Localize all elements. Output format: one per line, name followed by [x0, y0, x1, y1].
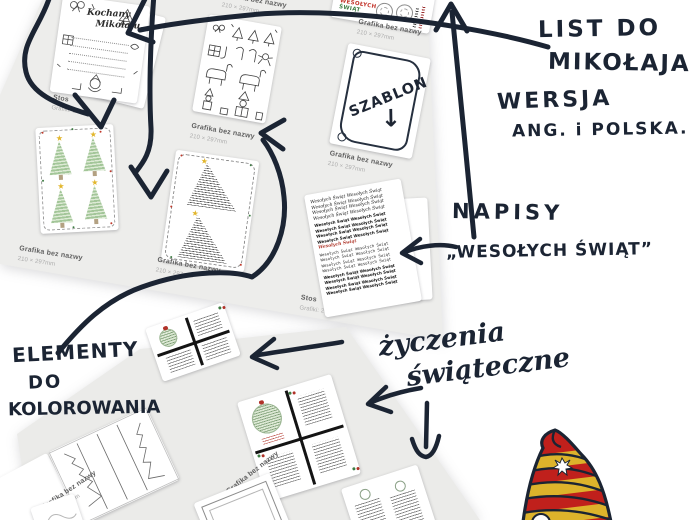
star-icon: ★ [57, 183, 65, 191]
wish-column [351, 485, 392, 520]
wreath-graphic [248, 400, 285, 437]
down-arrow-icon: ↓ [381, 104, 402, 132]
ornament-doodle-icon [395, 3, 415, 23]
tiny-text-block [355, 498, 392, 520]
note-elementy-line3: KOLOROWANIA [8, 397, 161, 421]
note-napisy-line1: NAPISY [452, 199, 564, 225]
green-trees-card[interactable]: ★ ★ ★ ★ [35, 124, 118, 234]
wish-column [386, 477, 427, 520]
tree-trunk [59, 175, 63, 180]
collage-stage: Kochany Mikołaju, Stos Grafiki: 2 Grafik… [0, 0, 700, 520]
label-letter-stack[interactable]: Stos Grafiki: 2 [51, 94, 79, 116]
ornament-doodle-icon [375, 2, 395, 22]
note-list-do-line3: WERSJA [497, 86, 613, 115]
merry-text-block: WESOŁYCH ŚWIĄT [339, 0, 377, 16]
star-icon: ★ [91, 179, 99, 187]
sprig-doodle [218, 306, 222, 310]
tiny-text-block [390, 489, 427, 520]
gnome-hat-illustration [505, 420, 635, 520]
star-icon: ★ [191, 209, 199, 218]
star-icon: ★ [56, 135, 64, 143]
wreath-mini-icon [358, 488, 372, 502]
tree-trunk [94, 219, 98, 224]
star-icon: ★ [90, 131, 98, 139]
note-list-do-line1: LIST DO [538, 15, 662, 43]
tree-trunk [60, 223, 64, 228]
letter-to-santa-card[interactable]: Kochany Mikołaju, [50, 0, 151, 104]
sprig-doodle [257, 454, 261, 458]
tiny-text-block [202, 337, 232, 361]
tiny-text-block [297, 389, 333, 426]
sprig-doodle [288, 391, 292, 395]
tree-trunk [93, 171, 97, 176]
label-wishes-stack[interactable]: Stos Grafiki: 2 [299, 294, 326, 315]
note-elementy-line2: DO [28, 371, 63, 393]
note-napisy-line2: „WESOŁYCH ŚWIĄT” [446, 239, 653, 263]
wreath-graphic [157, 326, 180, 349]
sprig-doodle [352, 467, 356, 471]
note-list-do-line4: ANG. i POLSKA. [512, 118, 689, 141]
wreath-mini-icon [393, 479, 407, 493]
star-icon: ★ [200, 157, 208, 166]
text-tree-card[interactable]: ★ ★ [161, 150, 260, 273]
vertical-text-strip [419, 6, 426, 28]
tiny-text-block [166, 349, 196, 373]
tiny-text-block [311, 436, 347, 473]
note-list-do-line2: MIKOŁAJA [548, 49, 691, 77]
